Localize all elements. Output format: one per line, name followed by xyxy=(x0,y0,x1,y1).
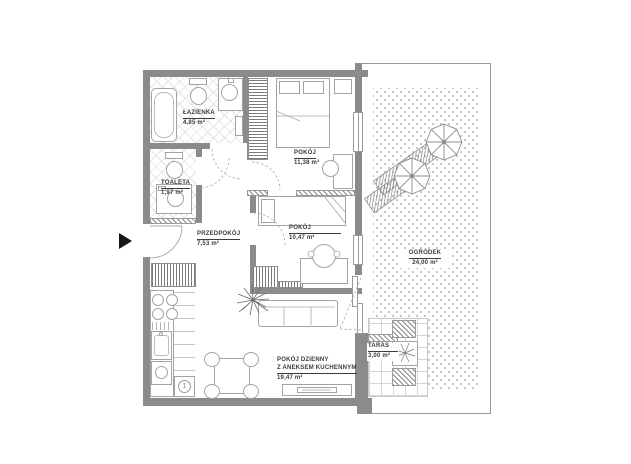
window-frame-line xyxy=(358,236,359,264)
wall-top xyxy=(143,70,368,77)
terrace-chair-bottom xyxy=(392,368,416,386)
room-name: TARAS xyxy=(368,343,398,352)
room-area: 19,47 m² xyxy=(277,375,357,383)
room-label-pokoj-dzienny: POKÓJ DZIENNY Z ANEKSEM KUCHENNYM 19,47 … xyxy=(277,357,357,383)
room-name: ŁAZIENKA xyxy=(183,110,215,119)
pillow-single xyxy=(261,199,275,223)
plot-boundary-top xyxy=(362,63,490,64)
wall-toilet-right-b xyxy=(196,185,202,223)
window-bedroom2 xyxy=(353,235,363,265)
room-area: 11,38 m² xyxy=(294,160,319,168)
room-name: PRZEDPOKÓJ xyxy=(197,231,240,240)
washbasin-tap xyxy=(228,78,234,83)
plot-boundary-right xyxy=(490,63,491,414)
room-label-toaleta: TOALETA 1,97 m² xyxy=(161,180,190,198)
wall-left-lower xyxy=(143,257,150,405)
room-label-pokoj-1: POKÓJ 11,38 m² xyxy=(294,150,319,168)
bathroom-radiator xyxy=(235,116,243,136)
wardrobe-bedroom2 xyxy=(252,266,278,288)
nightstand xyxy=(334,79,352,94)
terrace-sliding-door-b xyxy=(357,303,363,334)
room-area: 1,97 m² xyxy=(161,190,190,198)
dining-chair-3 xyxy=(204,384,220,399)
dining-chair-1 xyxy=(204,352,220,367)
wall-right-b xyxy=(355,152,362,235)
chair-bedroom2 xyxy=(312,244,336,268)
window-frame-line xyxy=(358,113,359,151)
wall-right-c xyxy=(355,265,362,275)
room-name-line1: POKÓJ DZIENNY xyxy=(277,357,357,365)
sofa xyxy=(258,300,338,327)
room-name: OGRÓDEK xyxy=(409,250,441,259)
toilet-tank-bathroom xyxy=(189,78,207,85)
room-area: 24,00 m² xyxy=(401,260,449,268)
pillow-right xyxy=(303,81,324,94)
toilet-tank xyxy=(165,152,183,159)
room-name: TOALETA xyxy=(161,180,190,189)
wall-right-a xyxy=(355,63,362,112)
entrance-door-swing xyxy=(150,226,182,258)
kitchen-unit-box: 1 xyxy=(174,376,195,397)
room-area: 10,47 m² xyxy=(289,235,341,243)
wall-toilet-right-a xyxy=(196,149,202,157)
room-label-pokoj-2: POKÓJ 10,47 m² xyxy=(289,225,341,243)
wall-bedroom2-left-a xyxy=(250,196,256,213)
chair-bedroom1 xyxy=(322,160,339,177)
floor-plan: 1 xyxy=(0,0,631,464)
wardrobe-hallway xyxy=(151,263,196,287)
terrace-chair-top xyxy=(392,320,416,338)
room-name: POKÓJ xyxy=(294,150,316,159)
tv-screen xyxy=(297,387,337,393)
toilet-bowl xyxy=(166,161,183,179)
dining-chair-2 xyxy=(243,352,259,367)
room-label-taras: TARAS 3,00 m² xyxy=(367,343,399,361)
kitchen-unit-circle: 1 xyxy=(178,380,191,393)
dishwasher-drum xyxy=(155,366,168,379)
room-area: 4,85 m² xyxy=(183,120,215,128)
pillow-left xyxy=(279,81,300,94)
stove-burner-1 xyxy=(152,294,164,306)
room-name: POKÓJ xyxy=(289,225,341,234)
room-label-ogrodek: OGRÓDEK 24,00 m² xyxy=(400,250,450,268)
wall-corner-block xyxy=(357,398,372,414)
room-name-line2: Z ANEKSEM KUCHENNYM xyxy=(277,365,357,374)
room-area: 7,53 m² xyxy=(197,241,240,249)
kitchen-tap xyxy=(159,332,163,336)
stove-burner-3 xyxy=(152,308,164,320)
room-area: 3,00 m² xyxy=(368,353,398,361)
kitchen-sink-bowl xyxy=(154,335,169,356)
stove-burner-2 xyxy=(166,294,178,306)
wall-toilet-bottom xyxy=(150,218,196,224)
entrance-arrow-icon xyxy=(119,233,132,249)
toilet-bowl-bathroom xyxy=(190,87,207,105)
sink-drainer xyxy=(152,322,172,330)
room-label-lazienka: ŁAZIENKA 4,85 m² xyxy=(183,110,215,128)
plot-boundary-bottom xyxy=(368,413,491,414)
dining-chair-4 xyxy=(243,384,259,399)
wall-bottom xyxy=(143,398,370,406)
wall-livingroom-top xyxy=(250,288,362,294)
washbasin-bowl xyxy=(221,84,238,101)
bathtub-inner xyxy=(154,92,174,138)
kitchen-unit-number: 1 xyxy=(183,383,187,390)
wardrobe-bedroom1 xyxy=(248,78,268,160)
stove-burner-4 xyxy=(166,308,178,320)
window-bedroom1 xyxy=(353,112,363,152)
room-label-przedpokoj: PRZEDPOKÓJ 7,53 m² xyxy=(197,231,240,249)
